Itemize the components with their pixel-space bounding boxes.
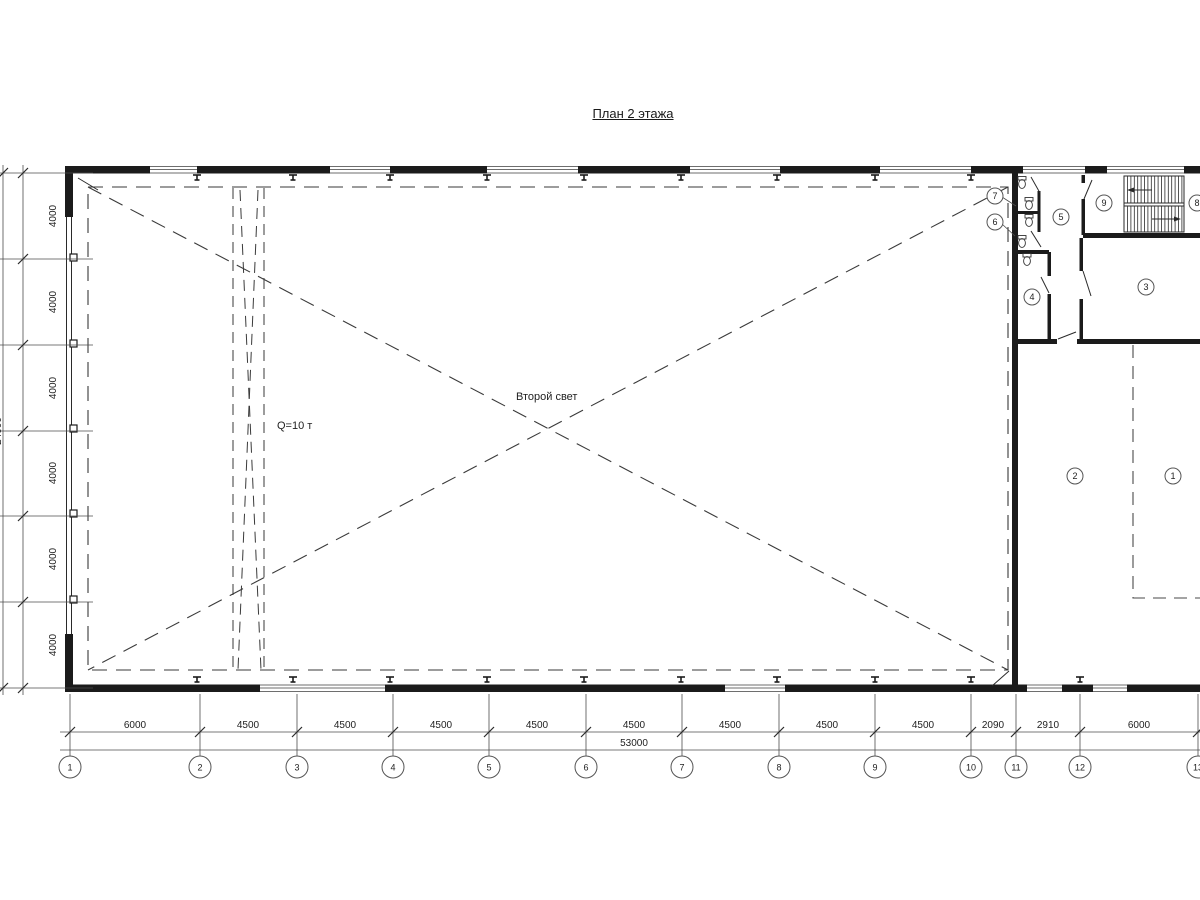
room-number: 1 [1170, 471, 1175, 481]
left-dimension-values: 400040004000400040004000 [48, 204, 59, 656]
floor-plan-sheet: План 2 этажа [0, 0, 1200, 900]
left-dimension-lines [0, 165, 93, 695]
toilet-icon [1018, 177, 1026, 189]
dimension-value: 4000 [48, 376, 59, 399]
axis-number: 11 [1011, 763, 1020, 773]
top-wall [65, 166, 1200, 174]
toilet-icon [1025, 198, 1033, 210]
dimension-value: 4500 [623, 720, 646, 731]
overall-height-value: 24000 [0, 417, 4, 445]
crane-runway [233, 188, 264, 672]
axis-number: 8 [776, 763, 781, 773]
axis-number: 6 [583, 763, 588, 773]
axis-number: 12 [1075, 763, 1085, 773]
dimension-value: 4500 [430, 720, 453, 731]
room-number: 2 [1072, 471, 1077, 481]
room-number: 7 [992, 191, 997, 201]
axis-number: 9 [872, 763, 877, 773]
column-marker [70, 340, 77, 347]
second-light-label: Второй свет [516, 391, 577, 403]
axis-number: 10 [966, 763, 976, 773]
dimension-value: 4000 [48, 461, 59, 484]
overall-length-value: 53000 [620, 738, 648, 749]
dimension-value: 4500 [334, 720, 357, 731]
staircase [1124, 176, 1184, 232]
axis-number: 1 [67, 763, 72, 773]
door-swings [78, 177, 1092, 686]
room-number: 4 [1029, 292, 1034, 302]
room-number: 3 [1143, 282, 1148, 292]
crane-capacity-label: Q=10 т [277, 420, 312, 432]
dimension-value: 4000 [48, 290, 59, 313]
toilet-icon [1025, 215, 1033, 227]
dimension-value: 2910 [1037, 720, 1060, 731]
dimension-value: 4000 [48, 633, 59, 656]
floor-plan-drawing: Второй свет Q=10 т [0, 0, 1200, 900]
dimension-value: 4000 [48, 547, 59, 570]
axis-number: 2 [197, 763, 202, 773]
room-number: 6 [992, 217, 997, 227]
bottom-dimension-values: 6000450045004500450045004500450045002090… [124, 720, 1151, 731]
axis-number: 13 [1193, 763, 1200, 773]
dimension-value: 4500 [237, 720, 260, 731]
dimension-value: 4500 [816, 720, 839, 731]
axis-number: 5 [486, 763, 491, 773]
room-number: 5 [1058, 212, 1063, 222]
axis-number: 3 [294, 763, 299, 773]
dimension-value: 4500 [526, 720, 549, 731]
toilet-icon [1018, 236, 1026, 248]
interior-walls [1012, 173, 1200, 691]
dimension-value: 4000 [48, 204, 59, 227]
axis-bubbles: 12345678910111213 [59, 694, 1200, 778]
left-wall [65, 173, 77, 691]
axis-number: 7 [679, 763, 684, 773]
dimension-value: 6000 [124, 720, 147, 731]
dimension-value: 2090 [982, 720, 1005, 731]
stair-treads [1128, 176, 1182, 232]
stair-direction-arrows [1127, 188, 1181, 222]
room-number: 8 [1194, 198, 1199, 208]
dimension-value: 4500 [719, 720, 742, 731]
dimension-value: 6000 [1128, 720, 1151, 731]
column-markers [193, 175, 1084, 682]
dimension-value: 4500 [912, 720, 935, 731]
room-number: 9 [1101, 198, 1106, 208]
toilet-icon [1023, 254, 1031, 266]
axis-number: 4 [390, 763, 395, 773]
void-outline [88, 187, 1008, 670]
column-marker [70, 254, 77, 261]
bottom-wall [65, 685, 1200, 693]
